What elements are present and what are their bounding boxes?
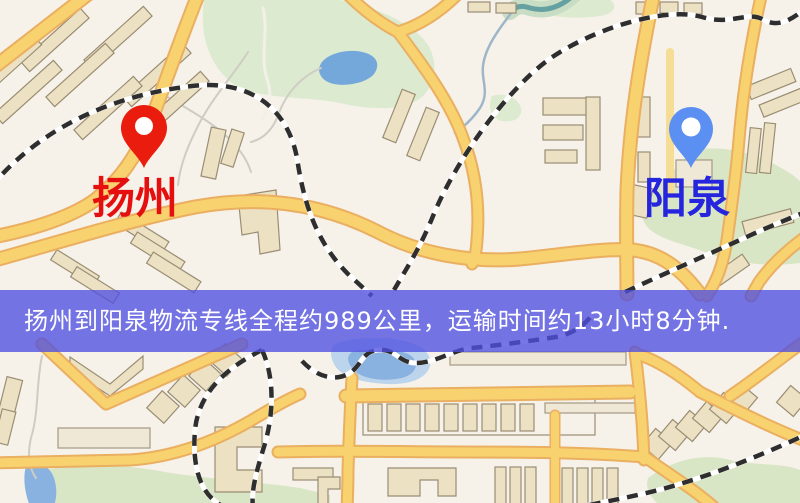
route-info-banner: 扬州到阳泉物流专线全程约989公里，运输时间约13小时8分钟.: [0, 290, 800, 352]
pin-body: [121, 105, 167, 168]
pin-hole: [682, 118, 701, 137]
route-info-text: 扬州到阳泉物流专线全程约989公里，运输时间约13小时8分钟.: [0, 290, 800, 352]
pin-hole: [135, 117, 153, 135]
origin-city-label-text: 扬州: [92, 174, 178, 224]
origin-location-pin-icon[interactable]: [118, 102, 170, 170]
map-container: 扬州 阳泉 扬州到阳泉物流专线全程约989公里，运输时间约13小时8分钟.: [0, 0, 800, 503]
destination-city-label-text: 阳泉: [644, 174, 730, 224]
destination-city-label: 阳泉: [640, 170, 770, 224]
map-canvas[interactable]: [0, 0, 800, 503]
pin-body: [669, 107, 713, 168]
destination-location-pin-icon[interactable]: [666, 104, 716, 170]
origin-city-label: 扬州: [88, 170, 218, 224]
